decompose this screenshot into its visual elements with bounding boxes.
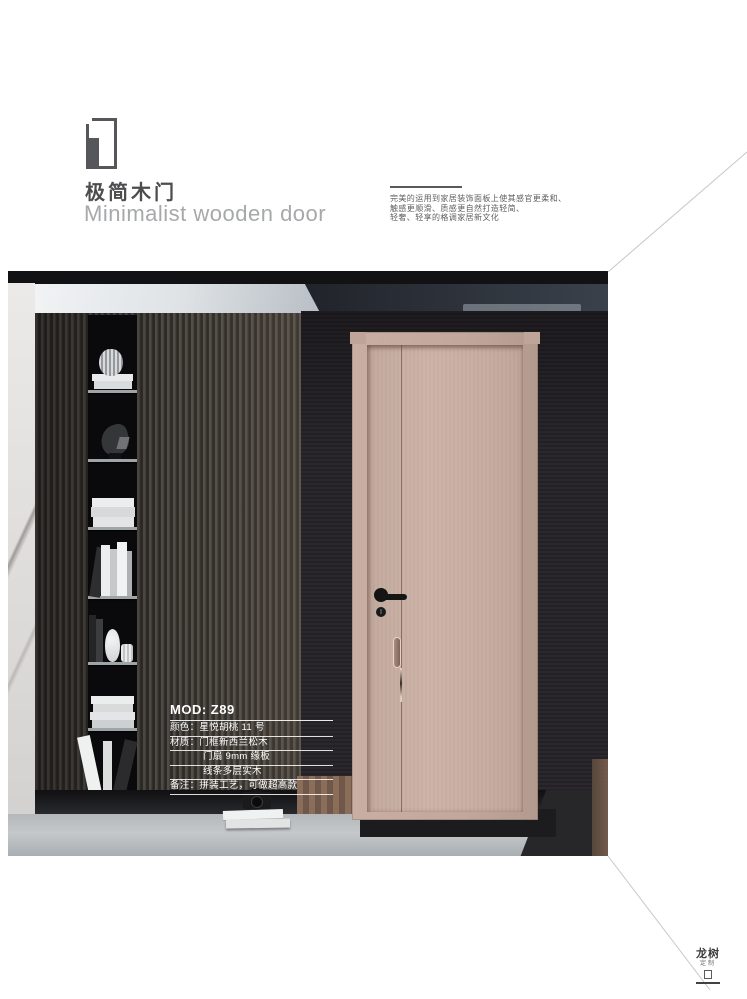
door-logo-fill bbox=[86, 138, 99, 166]
description-rule bbox=[390, 186, 462, 188]
product-photo: MOD: Z89 颜色：星悦胡桃 11 号 材质：门框新西兰松木 门扇 9mm … bbox=[8, 271, 608, 856]
shelf-book bbox=[117, 542, 127, 596]
brand-logo: 龙树 定制 bbox=[692, 949, 724, 984]
brand-seal-icon bbox=[704, 970, 712, 979]
door-pull-line bbox=[400, 668, 402, 702]
shelf-board bbox=[88, 728, 137, 731]
door-logo-notch bbox=[84, 116, 92, 124]
brand-underline bbox=[696, 982, 720, 984]
catalog-page: 极简木门 Minimalist wooden door 完美的运用到家居装饰面板… bbox=[0, 0, 747, 999]
description-line: 轻奢、轻享的格调家居新文化 bbox=[390, 213, 590, 223]
product-spec-block: MOD: Z89 颜色：星悦胡桃 11 号 材质：门框新西兰松木 门扇 9mm … bbox=[170, 702, 333, 796]
door-pull-recess bbox=[393, 637, 401, 668]
frame-corner-left bbox=[350, 332, 366, 344]
shelf-books bbox=[94, 381, 132, 389]
door-handle-lever bbox=[379, 594, 407, 600]
door-logo-icon bbox=[86, 118, 117, 169]
spec-note: 备注：拼装工艺，可做超高款 bbox=[170, 781, 333, 795]
camera-lens bbox=[251, 796, 263, 808]
spec-color: 颜色：星悦胡桃 11 号 bbox=[170, 723, 333, 737]
brand-name: 龙树 bbox=[692, 949, 724, 960]
bookshelf-niche bbox=[88, 315, 137, 800]
shelf-books bbox=[93, 517, 134, 527]
wood-baseboard bbox=[592, 759, 608, 856]
shelf-books bbox=[93, 704, 133, 712]
shelf-books bbox=[92, 498, 134, 507]
door-frame bbox=[352, 332, 538, 820]
brand-subtitle: 定制 bbox=[692, 960, 724, 968]
ribbed-jar bbox=[121, 644, 133, 662]
description-line: 触感更顺滑、质感更自然打造轻简、 bbox=[390, 204, 590, 214]
shelf-book bbox=[101, 545, 110, 596]
spec-material: 材质：门框新西兰松木 bbox=[170, 738, 333, 752]
door-keyhole bbox=[380, 609, 382, 614]
shelf-board bbox=[88, 527, 137, 530]
shelf-book bbox=[110, 549, 117, 596]
spec-lines: 线条多层实木 bbox=[170, 767, 333, 781]
marble-wall bbox=[8, 283, 35, 856]
shelf-board bbox=[88, 662, 137, 665]
model-number: MOD: Z89 bbox=[170, 702, 333, 721]
door-leaf bbox=[367, 345, 523, 812]
floor-book bbox=[226, 818, 290, 828]
description-paragraph: 完美的运用到家居装饰面板上使其感官更柔和、 触感更顺滑、质感更自然打造轻简、 轻… bbox=[390, 194, 590, 223]
shelf-books bbox=[90, 712, 135, 720]
shelf-book bbox=[96, 619, 103, 662]
description-line: 完美的运用到家居装饰面板上使其感官更柔和、 bbox=[390, 194, 590, 204]
ribbed-vase bbox=[99, 349, 123, 376]
ceiling-beam bbox=[8, 271, 608, 284]
shelf-book bbox=[127, 551, 132, 596]
shelf-books bbox=[91, 507, 135, 517]
shelf-board bbox=[88, 390, 137, 393]
sculpture-base bbox=[109, 453, 121, 459]
shelf-board bbox=[88, 459, 137, 462]
shelf-books bbox=[92, 720, 134, 728]
shelf-book bbox=[89, 615, 96, 662]
spec-panel: 门扇 9mm 缘板 bbox=[170, 752, 333, 766]
shelf-books bbox=[91, 696, 134, 704]
egg-ornament bbox=[105, 629, 120, 662]
frame-corner-right bbox=[524, 332, 540, 344]
door-groove-line bbox=[401, 345, 402, 812]
page-title-english: Minimalist wooden door bbox=[84, 201, 326, 227]
